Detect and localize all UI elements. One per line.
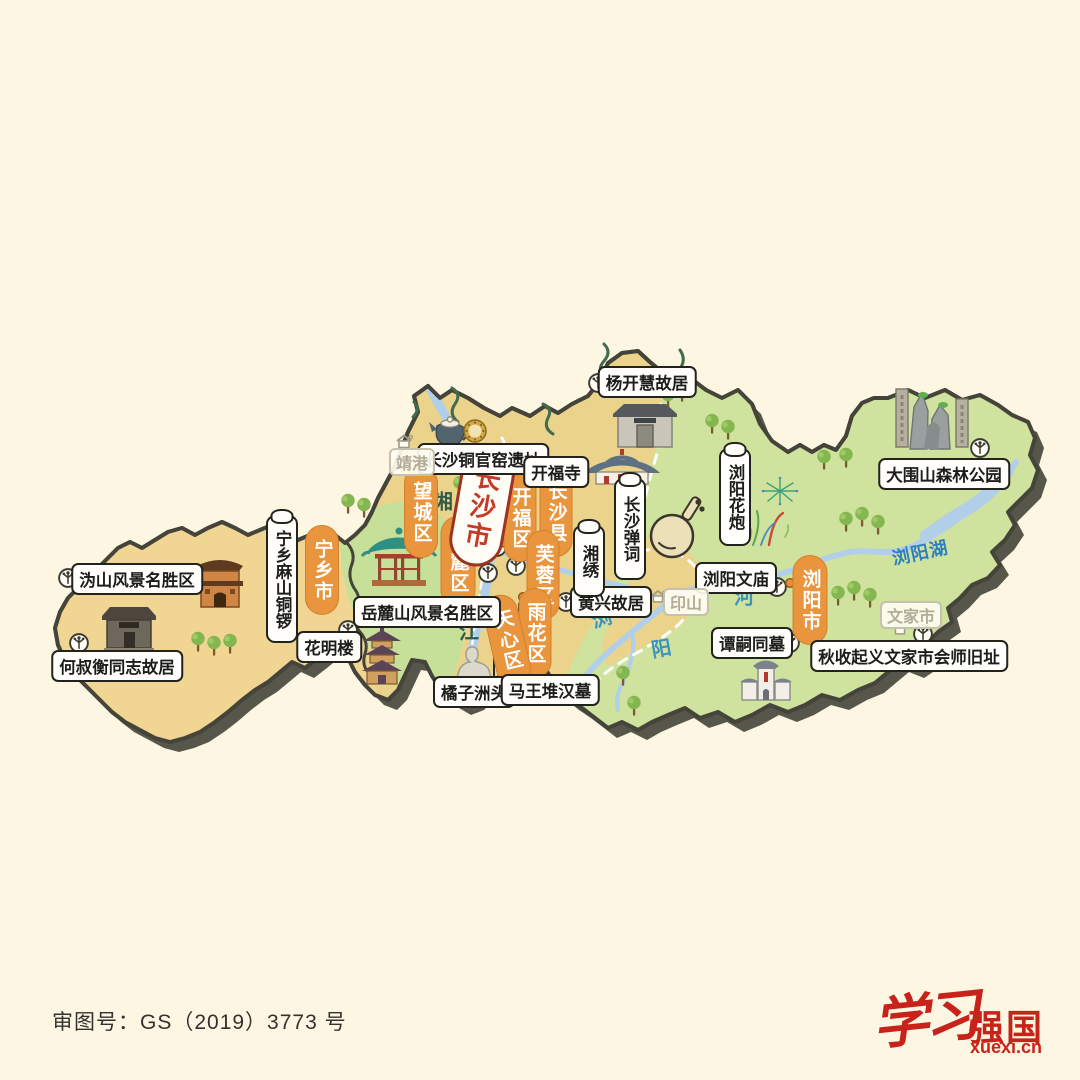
specialty-label: 长沙弹词 bbox=[618, 496, 642, 562]
attraction-weishan-scenic-area: 沩山风景名胜区 bbox=[71, 563, 203, 595]
memorial-gate-icon bbox=[740, 654, 792, 702]
house-icon bbox=[394, 433, 414, 449]
map-license-number: 审图号：GS（2019）3773 号 bbox=[52, 1006, 347, 1036]
specialty-label: 浏阳花炮 bbox=[723, 464, 747, 530]
logo-domain-text: xuexi.cn bbox=[970, 1037, 1042, 1058]
residence-icon bbox=[610, 397, 680, 449]
attraction-daweishan-forest-park: 大围山森林公园 bbox=[878, 458, 1010, 490]
tree-icon bbox=[720, 419, 736, 442]
firework-spray-icon bbox=[745, 505, 791, 547]
scroll-cap-icon bbox=[578, 519, 601, 534]
pagoda-icon bbox=[357, 624, 407, 688]
tree-icon bbox=[838, 447, 854, 470]
tree-icon bbox=[704, 413, 720, 436]
specialty-changsha-tanci: 长沙弹词 bbox=[614, 478, 646, 580]
district-label-wangcheng: 望城区 bbox=[404, 466, 438, 558]
tree-icon bbox=[222, 633, 238, 656]
specialty-xiang-embroidery: 湘绣 bbox=[573, 525, 605, 597]
tree-icon bbox=[190, 631, 206, 654]
tree-icon bbox=[206, 635, 222, 658]
district-label-ningxiang: 宁乡市 bbox=[305, 525, 339, 615]
town-label-jinggang: 靖港 bbox=[389, 448, 435, 476]
specialty-label: 宁乡麻山铜锣 bbox=[270, 530, 294, 629]
district-label-liuyang: 浏阳市 bbox=[793, 555, 828, 645]
attraction-heshuheng-residence: 何叔衡同志故居 bbox=[51, 650, 183, 682]
attraction-kaifu-temple: 开福寺 bbox=[523, 456, 589, 488]
logo-script-text: 学习 bbox=[868, 970, 980, 1061]
scroll-cap-icon bbox=[724, 442, 747, 457]
firework-burst-icon bbox=[759, 475, 801, 507]
tree-icon bbox=[615, 665, 631, 688]
town-label-wenjiashi: 文家市 bbox=[880, 601, 942, 629]
tree-icon bbox=[626, 695, 642, 718]
attraction-yuelushan-scenic-area: 岳麓山风景名胜区 bbox=[353, 596, 501, 628]
attraction-huaminglou: 花明楼 bbox=[296, 631, 362, 663]
poster-canvas: 湘 江 浏 阳 河 浏阳湖 宁乡市 望城区 开福区 长沙县 岳麓区 芙蓉区 雨花… bbox=[0, 0, 1080, 1080]
specialty-liuyang-fireworks: 浏阳花炮 bbox=[719, 448, 751, 546]
residence-icon bbox=[100, 602, 158, 652]
tree-icon bbox=[816, 449, 832, 472]
tree-icon bbox=[870, 514, 886, 537]
tree-icon bbox=[340, 493, 356, 516]
tree-badge-icon bbox=[970, 438, 991, 459]
xuexi-qiangguo-logo: 学习 强国 xuexi.cn bbox=[872, 975, 1057, 1065]
kiln-medallion-icon bbox=[462, 418, 488, 444]
tree-icon bbox=[862, 587, 878, 610]
coast-squiggle-5 bbox=[413, 402, 417, 417]
tree-icon bbox=[838, 511, 854, 534]
attraction-mawangdui-tombs: 马王堆汉墓 bbox=[501, 674, 600, 706]
town-label-yinshan: 印山 bbox=[663, 588, 709, 616]
specialty-label: 湘绣 bbox=[577, 545, 601, 578]
scroll-cap-icon bbox=[619, 472, 642, 487]
tree-icon bbox=[854, 506, 870, 529]
attraction-yangkaihui-residence: 杨开慧故居 bbox=[598, 366, 697, 398]
lute-icon bbox=[646, 496, 704, 560]
specialty-ningxiang-gong: 宁乡麻山铜锣 bbox=[266, 515, 298, 643]
tree-icon bbox=[356, 497, 372, 520]
attraction-tansitong-tomb: 谭嗣同墓 bbox=[711, 627, 793, 659]
tree-icon bbox=[846, 580, 862, 603]
tree-icon bbox=[830, 585, 846, 608]
mountain-gate-icon bbox=[894, 385, 970, 463]
attraction-autumn-uprising-site: 秋收起义文家市会师旧址 bbox=[810, 640, 1008, 672]
scroll-cap-icon bbox=[271, 509, 294, 524]
